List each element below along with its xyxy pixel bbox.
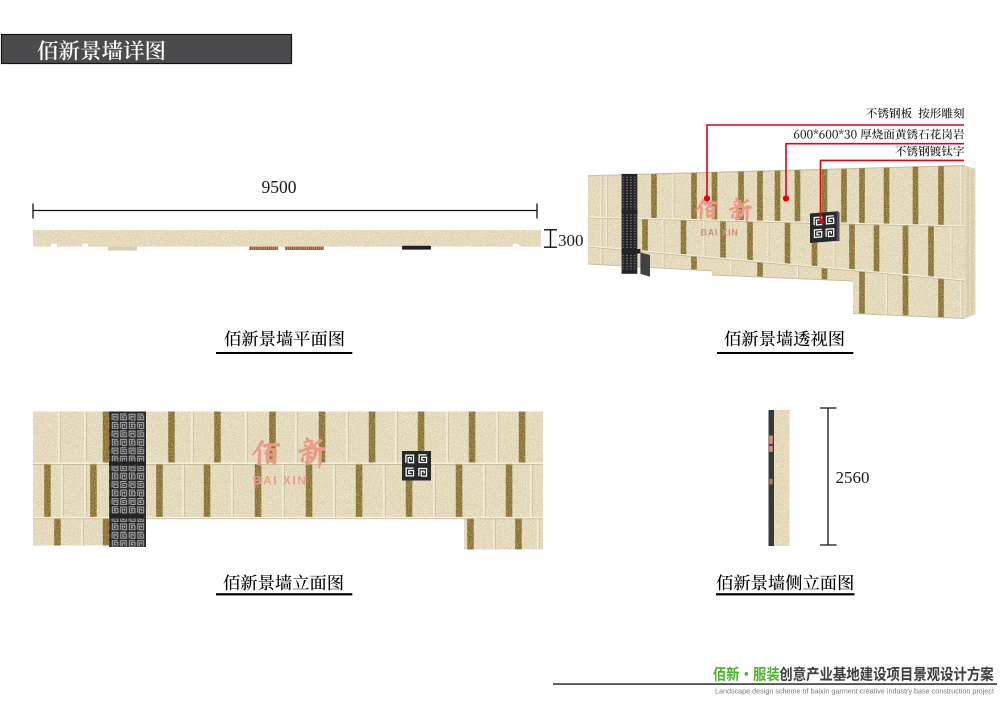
svg-text:Landscape design scheme of bai: Landscape design scheme of baixin garmen… — [715, 687, 994, 696]
svg-text:9500: 9500 — [262, 177, 297, 197]
svg-text:300: 300 — [558, 231, 584, 250]
svg-text:BAI XIN: BAI XIN — [253, 474, 307, 488]
svg-text:BAI XIN: BAI XIN — [701, 228, 739, 238]
svg-text:2560: 2560 — [836, 468, 870, 487]
